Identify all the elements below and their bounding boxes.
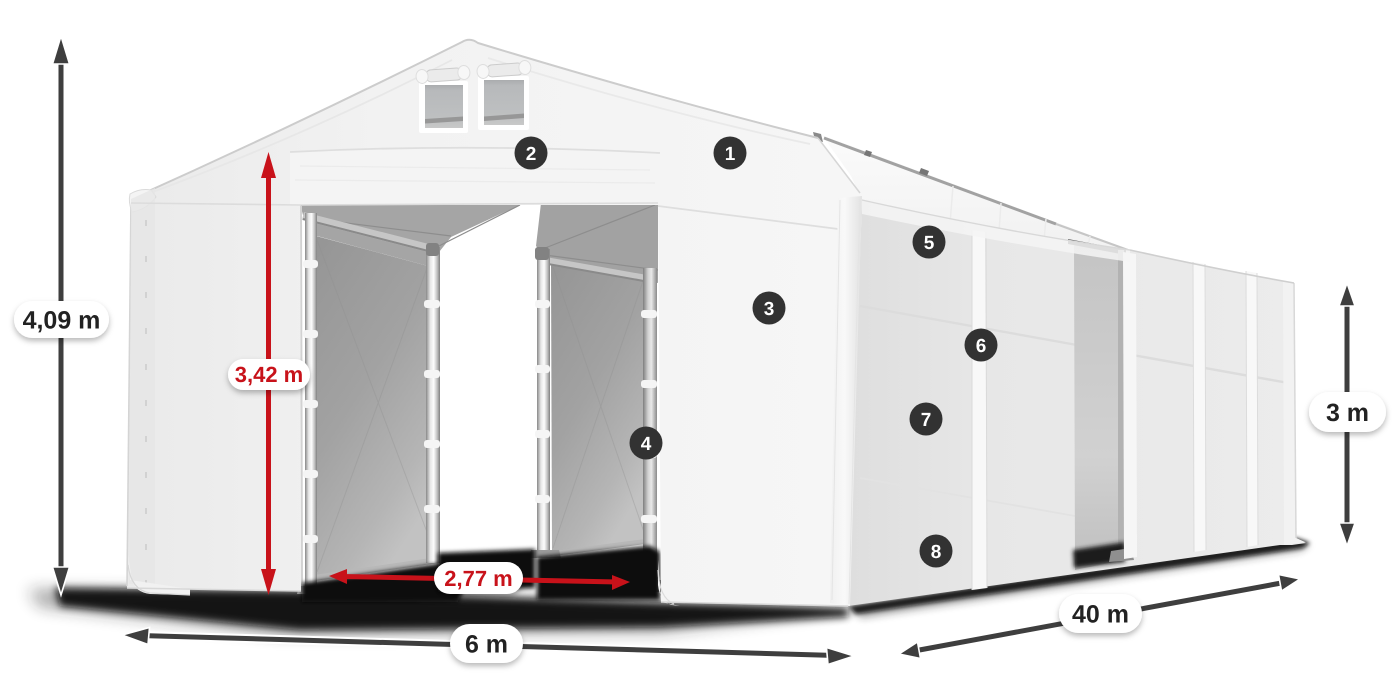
svg-text:4,09 m: 4,09 m xyxy=(23,307,101,335)
svg-text:5: 5 xyxy=(924,233,935,254)
svg-text:2,77 m: 2,77 m xyxy=(444,566,513,591)
svg-text:3,42 m: 3,42 m xyxy=(235,362,304,387)
svg-text:1: 1 xyxy=(725,144,736,165)
svg-text:4: 4 xyxy=(641,434,652,455)
svg-text:2: 2 xyxy=(526,144,537,165)
svg-text:40 m: 40 m xyxy=(1072,601,1129,629)
svg-text:3 m: 3 m xyxy=(1326,399,1369,427)
svg-text:3: 3 xyxy=(764,299,775,320)
svg-text:8: 8 xyxy=(931,542,942,563)
svg-text:7: 7 xyxy=(921,410,932,431)
svg-text:6: 6 xyxy=(976,336,987,357)
svg-text:6 m: 6 m xyxy=(465,631,508,659)
